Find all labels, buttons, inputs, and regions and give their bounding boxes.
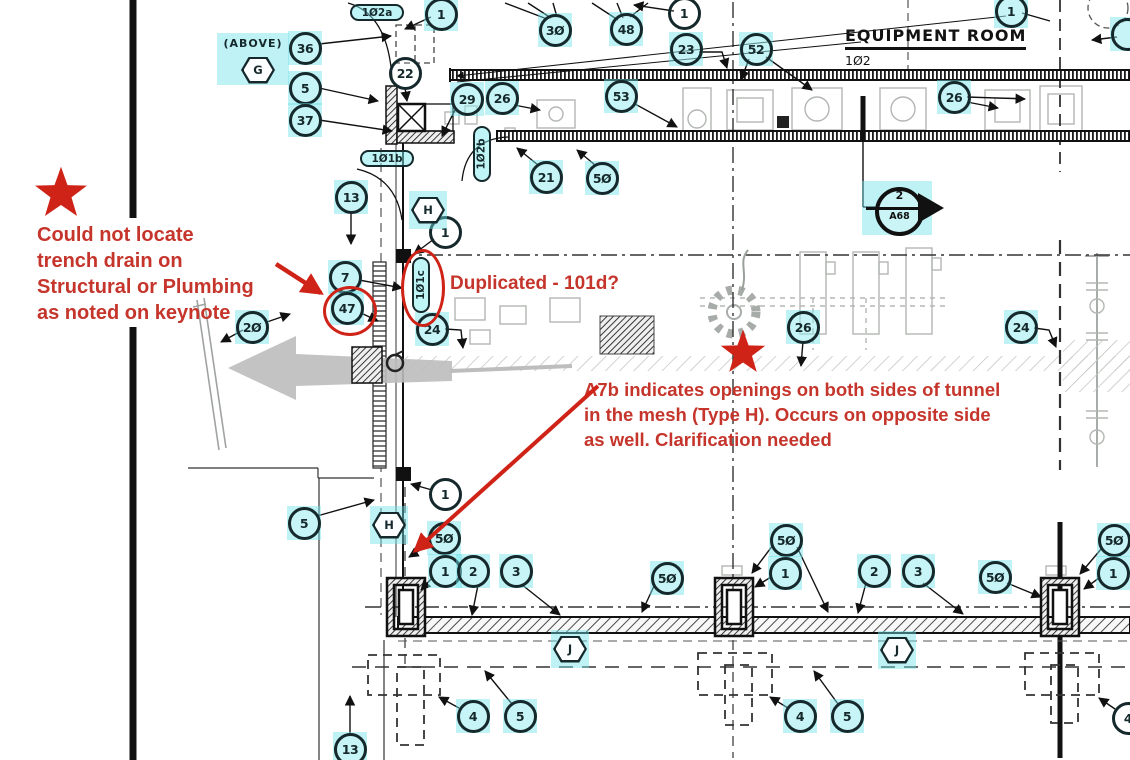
- wall-type-tag: H: [370, 506, 408, 544]
- keynote-callout: 26: [937, 80, 971, 114]
- keynote-callout: 13: [333, 732, 367, 760]
- wall-type-label: H: [372, 512, 406, 539]
- wall-type-tag: H: [409, 191, 447, 229]
- keynote-callout: 5: [503, 699, 537, 733]
- hex-shape: H: [411, 197, 445, 224]
- keynote-callout: 1: [428, 477, 462, 511]
- wall-type-tag: J: [551, 630, 589, 668]
- keynote-number: 3: [500, 555, 533, 588]
- door-tag-label: 1Ø2b: [476, 138, 488, 169]
- keynote-callout: 37: [288, 103, 322, 137]
- wall-type-label: J: [553, 636, 587, 663]
- keynote-callout: 47: [330, 291, 364, 325]
- keynote-number: 5Ø: [979, 561, 1012, 594]
- keynote-callout: 26: [485, 81, 519, 115]
- markup-note-line: Duplicated - 101d?: [450, 272, 619, 296]
- keynote-callout: 53: [604, 79, 638, 113]
- keynote-callout: 13: [334, 180, 368, 214]
- keynote-callout: 48: [609, 12, 643, 46]
- keynote-number: 29: [451, 83, 484, 116]
- section-cut-marker: 2 A68: [858, 180, 942, 238]
- hex-shape: H: [372, 512, 406, 539]
- keynote-callout: 4: [1111, 701, 1130, 735]
- markup-note-line: trench drain on: [37, 248, 254, 274]
- keynote-number: 1: [995, 0, 1028, 28]
- markup-note-line: as noted on keynote: [37, 300, 254, 326]
- keynote-callout: 5Ø: [585, 161, 619, 195]
- keynote-callout: 1: [1096, 556, 1130, 590]
- keynote-number: 23: [670, 33, 703, 66]
- keynote-callout: 5: [288, 71, 322, 105]
- keynote-callout: 1: [768, 556, 802, 590]
- keynote-number: 52: [740, 33, 773, 66]
- keynote-number: 22: [389, 57, 422, 90]
- keynote-callout: 2: [857, 554, 891, 588]
- keynote-number: 4: [784, 700, 817, 733]
- room-label: EQUIPMENT ROOM 1Ø2: [845, 26, 1026, 68]
- markup-note-line: Could not locate: [37, 222, 254, 248]
- keynote-callout: 36: [288, 31, 322, 65]
- keynote-number: 53: [605, 80, 638, 113]
- section-detail-number: 2: [875, 189, 924, 202]
- keynote-number: 5: [831, 700, 864, 733]
- keynote-callout: 21: [529, 160, 563, 194]
- markup-note-line: in the mesh (Type H). Occurs on opposite…: [584, 402, 1000, 427]
- keynote-number: 26: [938, 81, 971, 114]
- keynote-callout: 5Ø: [427, 521, 461, 555]
- keynote-number: 1: [425, 0, 458, 31]
- keynote-callout: 3: [901, 554, 935, 588]
- keynote-number: 13: [334, 733, 367, 760]
- keynote-callout: 1: [994, 0, 1028, 28]
- room-title: EQUIPMENT ROOM: [845, 26, 1026, 50]
- keynote-number: 7: [329, 261, 362, 294]
- keynote-number: 5Ø: [428, 522, 461, 555]
- keynote-callout: [1110, 17, 1130, 51]
- note-trench: Could not locatetrench drain onStructura…: [37, 222, 254, 326]
- keynote-number: 5Ø: [1098, 524, 1130, 557]
- keynote-callout: 7: [328, 260, 362, 294]
- note-a7b: A7b indicates openings on both sides of …: [584, 377, 1000, 452]
- keynote-number: 37: [289, 104, 322, 137]
- keynote-number: 47: [331, 292, 364, 325]
- keynote-callout: 22: [388, 56, 422, 90]
- keynote-number: 36: [289, 32, 322, 65]
- keynote-number: 2: [457, 555, 490, 588]
- keynote-callout: 5: [830, 699, 864, 733]
- keynote-number: 13: [335, 181, 368, 214]
- keynote-number: 1: [429, 478, 462, 511]
- keynote-callout: 2: [456, 554, 490, 588]
- keynote-callout: 4: [456, 699, 490, 733]
- room-number: 1Ø2: [845, 53, 1026, 68]
- keynote-number: 5Ø: [651, 562, 684, 595]
- section-direction-arrow: [918, 193, 944, 223]
- markup-note-line: A7b indicates openings on both sides of …: [584, 377, 1000, 402]
- note-duplicated: Duplicated - 101d?: [450, 272, 619, 296]
- keynote-number: 3Ø: [539, 14, 572, 47]
- keynote-number: 4: [457, 700, 490, 733]
- keynote-number: 1: [668, 0, 701, 30]
- markup-note-line: Structural or Plumbing: [37, 274, 254, 300]
- wall-type-label: G: [241, 57, 275, 84]
- keynote-number: 4: [1112, 702, 1130, 735]
- keynote-number: 5Ø: [586, 162, 619, 195]
- hex-shape: J: [880, 637, 914, 664]
- keynote-number: 48: [610, 13, 643, 46]
- keynote-number: 21: [530, 161, 563, 194]
- wall-type-label: H: [411, 197, 445, 224]
- keynote-number: [1111, 18, 1130, 51]
- door-tag: 1Ø2a: [350, 4, 404, 21]
- keynote-callout: 1: [667, 0, 701, 30]
- wall-type-tag: G: [239, 51, 277, 89]
- keynote-number: 5Ø: [770, 524, 803, 557]
- keynote-callout: 52: [739, 32, 773, 66]
- keynote-callout: 5: [287, 506, 321, 540]
- section-sheet-number: A68: [875, 211, 924, 222]
- keynote-number: 5: [288, 507, 321, 540]
- keynote-number: 24: [416, 313, 449, 346]
- keynote-number: 1: [1097, 557, 1130, 590]
- keynote-callout: 3: [499, 554, 533, 588]
- keynote-number: 24: [1005, 311, 1038, 344]
- keynote-callout: 23: [669, 32, 703, 66]
- keynote-callout: 5Ø: [650, 561, 684, 595]
- keynote-number: 26: [486, 82, 519, 115]
- keynote-number: 3: [902, 555, 935, 588]
- wall-type-label: J: [880, 637, 914, 664]
- keynote-callout: 24: [415, 312, 449, 346]
- wall-type-tag: J: [878, 631, 916, 669]
- keynote-number: 5: [289, 72, 322, 105]
- keynote-callout: 29: [450, 82, 484, 116]
- door-tag-label: 1Ø1c: [415, 270, 427, 300]
- hex-shape: J: [553, 636, 587, 663]
- hex-shape: G: [241, 57, 275, 84]
- floorplan-markup-view: 13Ø4812352261292653215Ø36537221317472Ø24…: [0, 0, 1130, 760]
- keynote-callout: 24: [1004, 310, 1038, 344]
- keynote-callout: 4: [783, 699, 817, 733]
- keynote-callout: 5Ø: [1097, 523, 1130, 557]
- keynote-callout: 5Ø: [769, 523, 803, 557]
- keynote-number: 2: [858, 555, 891, 588]
- keynote-callout: 1: [424, 0, 458, 31]
- keynote-number: 5: [504, 700, 537, 733]
- keynote-callout: 26: [786, 310, 820, 344]
- keynote-callout: 3Ø: [538, 13, 572, 47]
- keynote-callout: 5Ø: [978, 560, 1012, 594]
- door-tag: 1Ø2b: [473, 126, 491, 182]
- markup-note-line: as well. Clarification needed: [584, 427, 1000, 452]
- door-tag: 1Ø1c: [412, 257, 430, 313]
- keynote-number: 1: [769, 557, 802, 590]
- keynote-number: 26: [787, 311, 820, 344]
- door-tag: 1Ø1b: [360, 150, 414, 167]
